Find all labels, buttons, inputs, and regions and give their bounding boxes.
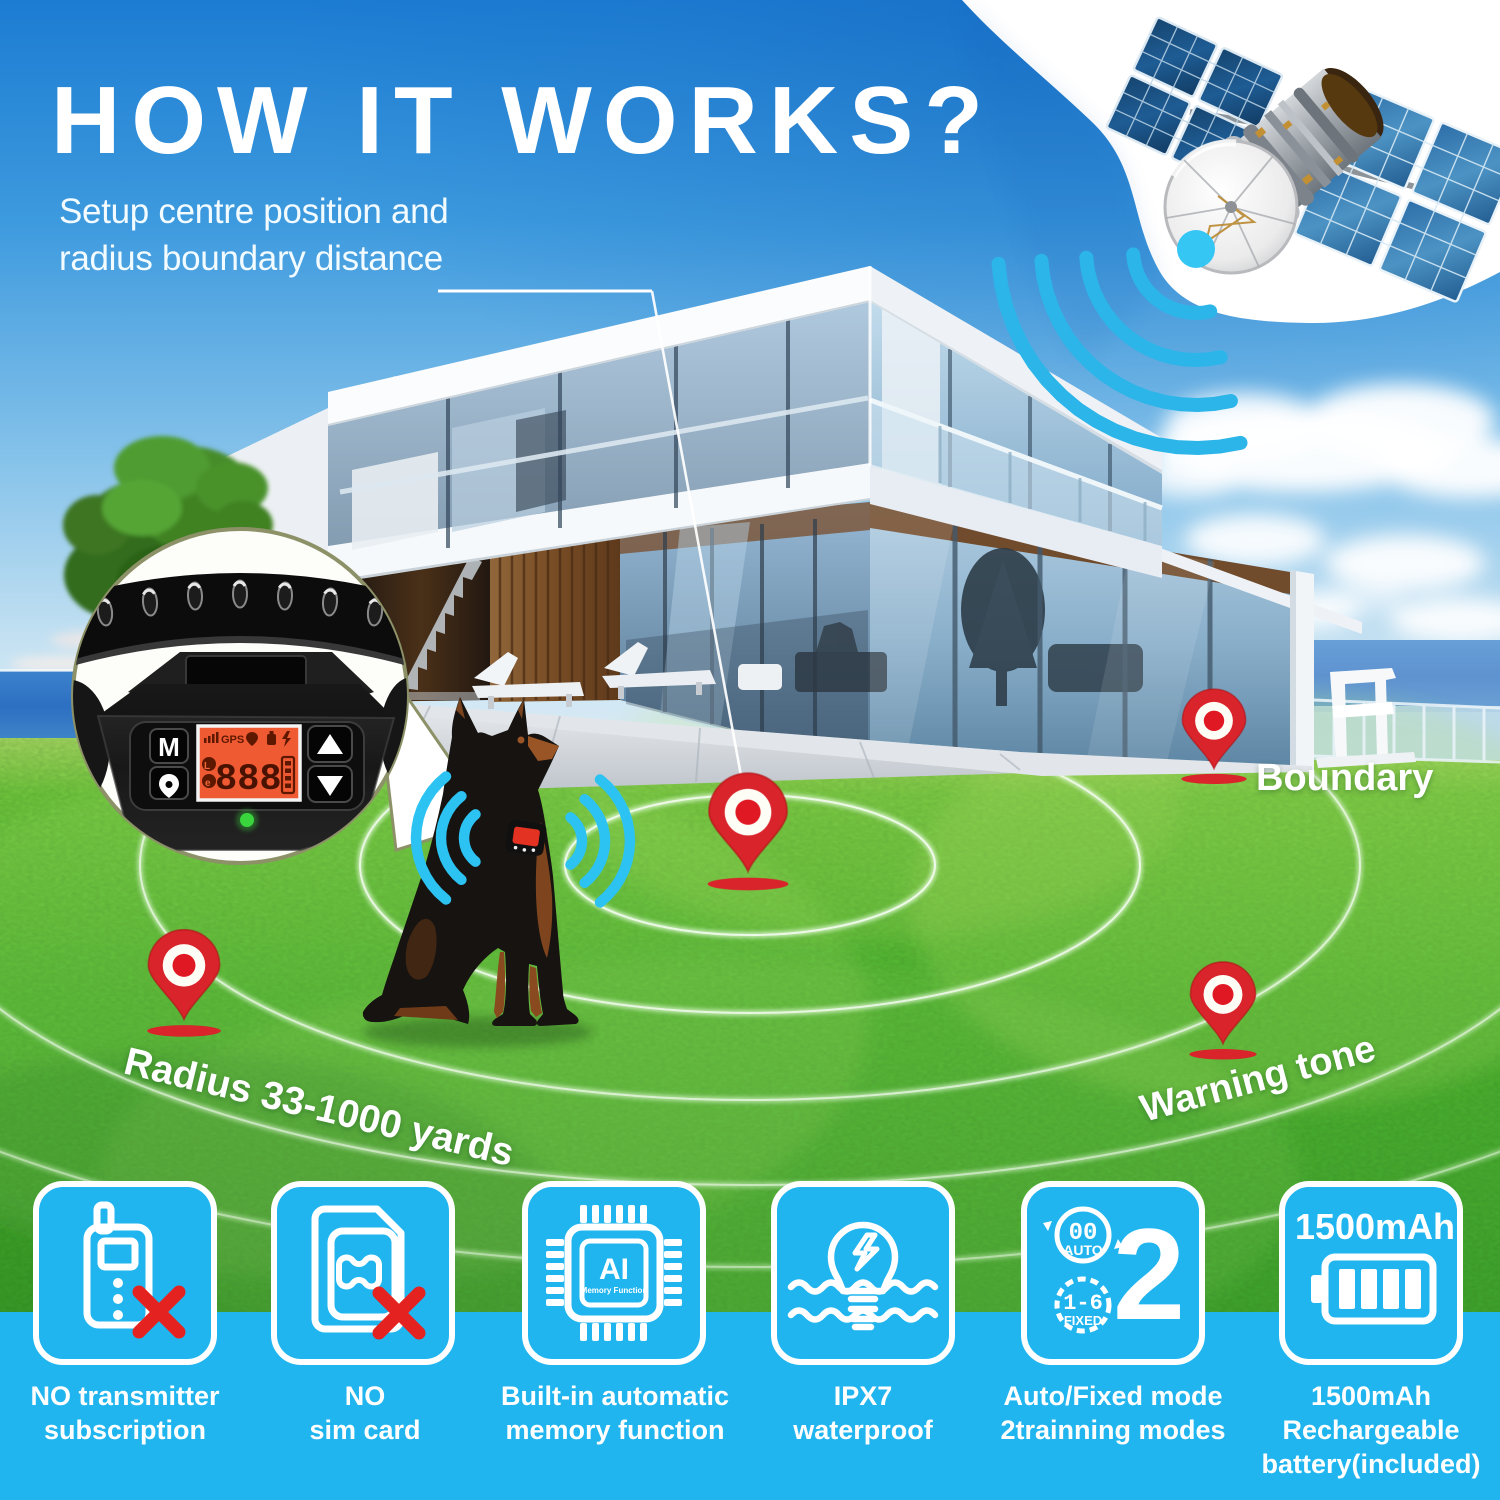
svg-text:AI: AI <box>599 1253 629 1286</box>
svg-text:888: 888 <box>215 759 282 801</box>
svg-text:Memory Function: Memory Function <box>581 1286 648 1295</box>
svg-text:2: 2 <box>1113 1201 1185 1347</box>
svg-text:1500mAh: 1500mAh <box>1295 1206 1455 1247</box>
svg-text:L: L <box>204 761 210 772</box>
svg-text:GPS: GPS <box>221 734 244 746</box>
svg-text:FIXED: FIXED <box>1064 1313 1102 1328</box>
svg-text:M: M <box>158 732 180 762</box>
svg-text:AUTO: AUTO <box>1063 1242 1103 1258</box>
svg-text:e: e <box>205 778 211 789</box>
